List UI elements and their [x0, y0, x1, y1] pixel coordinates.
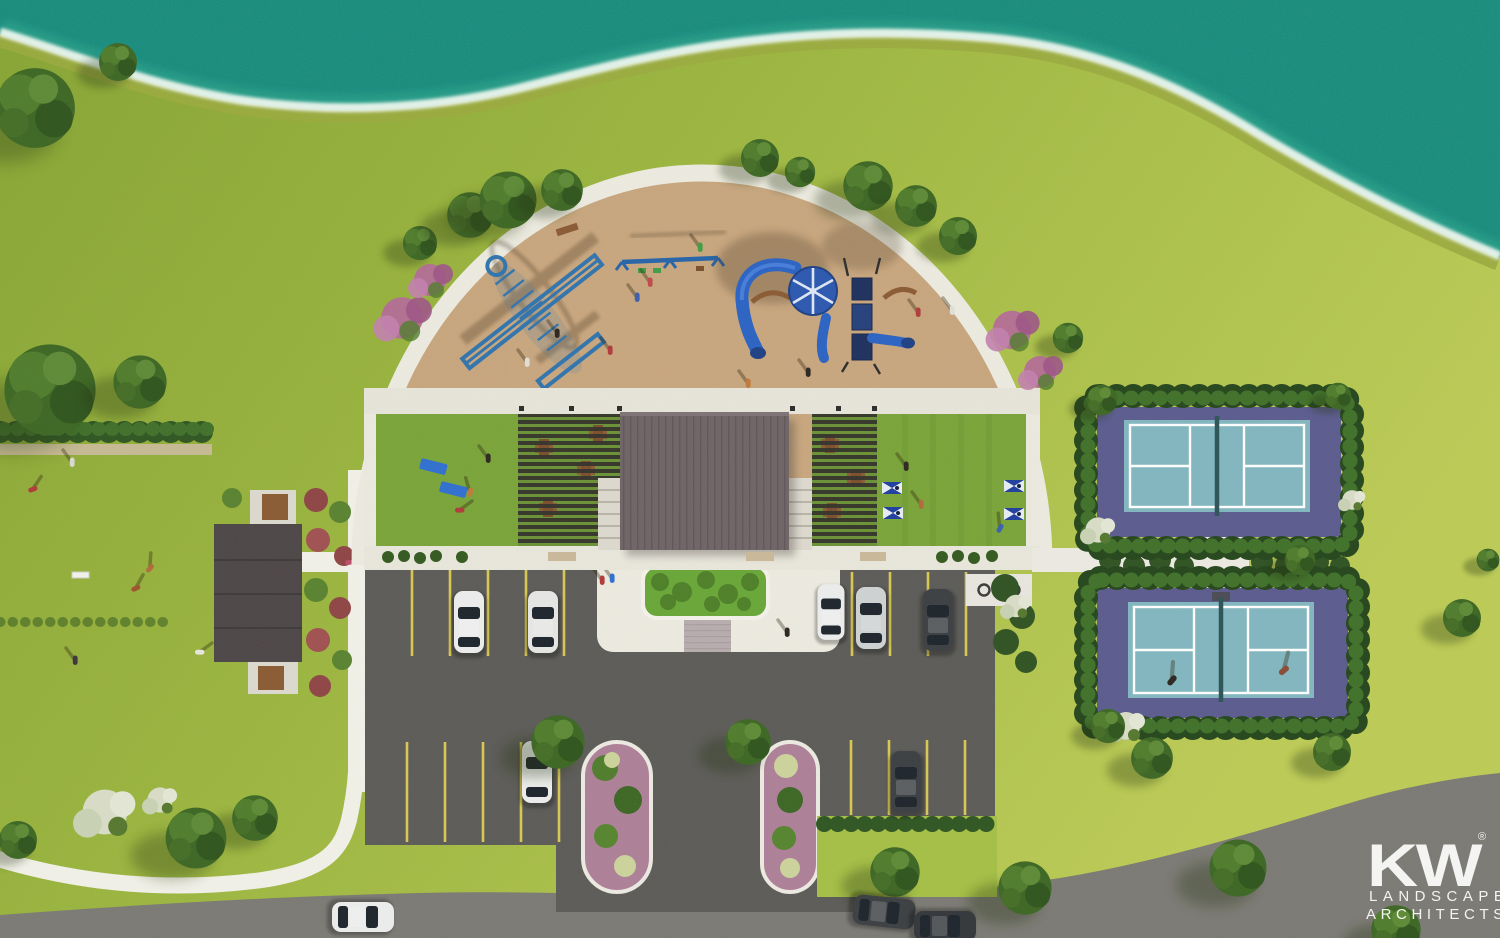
kw-landscape-architects-logo: KW ® LANDSCAPE ARCHITECTS [1366, 831, 1500, 923]
park-aerial-rendering: KW ® LANDSCAPE ARCHITECTS [0, 0, 1500, 938]
logo-line1: LANDSCAPE [1369, 888, 1500, 905]
render-texture [0, 0, 1500, 938]
logo-line2: ARCHITECTS [1366, 906, 1500, 923]
logo-registered: ® [1478, 831, 1486, 843]
